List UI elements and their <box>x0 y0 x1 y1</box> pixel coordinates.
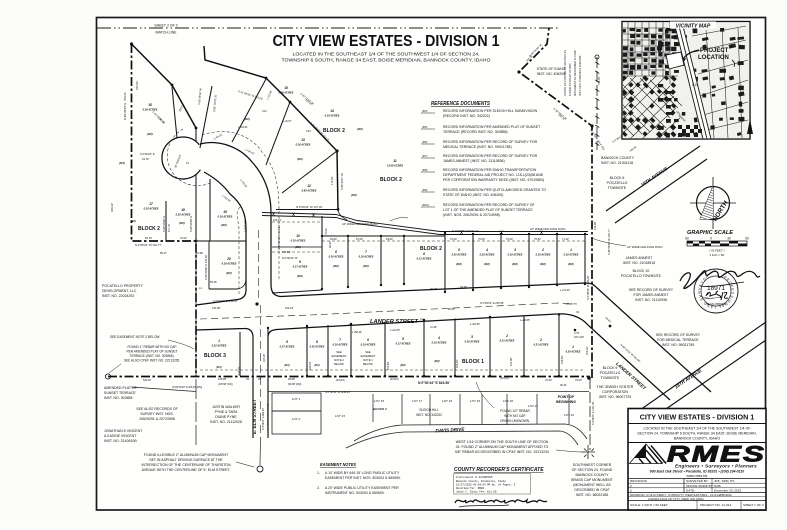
svg-text:INST. NO. 22024292: INST. NO. 22024292 <box>102 294 134 298</box>
svg-text:FOUND 1/2" REBAR: FOUND 1/2" REBAR <box>500 409 530 413</box>
svg-text:EASEMENT: EASEMENT <box>361 354 376 358</box>
svg-text:115.18': 115.18' <box>262 353 266 362</box>
svg-text:N 0°30'44" E 815.50': N 0°30'44" E 815.50' <box>418 381 450 385</box>
svg-text:SEE ALSO RECORDS OF: SEE ALSO RECORDS OF <box>136 407 177 411</box>
svg-text:(R1-R3): (R1-R3) <box>336 379 345 382</box>
svg-text:(S 0°36'43" E 660.17' (R5)): (S 0°36'43" E 660.17' (R5)) <box>268 403 270 430</box>
svg-text:(N 89°39'48" E 628.16' (R5)): (N 89°39'48" E 628.16' (R5)) <box>172 386 202 389</box>
svg-text:DATE:: DATE: <box>686 489 695 493</box>
svg-text:0.22 ACRES: 0.22 ACRES <box>212 344 227 348</box>
svg-text:189.22': 189.22' <box>110 202 114 212</box>
svg-text:WEST 1/16 CORNER ON THE SOUTH: WEST 1/16 CORNER ON THE SOUTH LINE OF SE… <box>456 440 549 444</box>
svg-text:BANNOCK COUNTY: BANNOCK COUNTY <box>601 156 635 160</box>
svg-text:( IN FEET ): ( IN FEET ) <box>709 249 724 253</box>
svg-text:0.21 ACRES: 0.21 ACRES <box>500 339 515 343</box>
svg-text:100.42': 100.42' <box>585 346 589 355</box>
svg-text:71.12': 71.12' <box>562 237 569 241</box>
svg-text:70.52': 70.52' <box>534 237 541 241</box>
svg-text:FOUND 1" REBAR WITH NO CAP: FOUND 1" REBAR WITH NO CAP <box>127 345 176 349</box>
svg-text:3: 3 <box>630 489 632 493</box>
svg-text:0.20 ACRES: 0.20 ACRES <box>310 345 325 349</box>
svg-text:S 0°00'22" E: S 0°00'22" E <box>140 152 155 156</box>
svg-text:PER CORPORATION WARRANTY DEED: PER CORPORATION WARRANTY DEED (INST. NO.… <box>443 178 544 182</box>
svg-text:SEE EASEMENT NOTE 2 BELOW: SEE EASEMENT NOTE 2 BELOW <box>110 335 160 339</box>
svg-text:0.35 ACRES: 0.35 ACRES <box>325 114 340 118</box>
svg-text:0.21 ACRES: 0.21 ACRES <box>534 343 549 347</box>
svg-text:FOUND ILLEGIBLE 2" ALUMINUM CA: FOUND ILLEGIBLE 2" ALUMINUM CAP MONUMENT <box>144 453 229 457</box>
svg-text:SOB: SOB <box>714 484 721 488</box>
svg-text:STATE OF IDAHO (INST. NO. 4062: STATE OF IDAHO (INST. NO. 406205) <box>443 193 503 197</box>
svg-text:3: 3 <box>471 335 473 339</box>
svg-text:0.18 ACRES: 0.18 ACRES <box>361 343 376 347</box>
svg-text:1: 1 <box>218 339 220 343</box>
svg-text:SURVEY INST. NOS.: SURVEY INST. NOS. <box>140 412 173 416</box>
svg-text:DEVELOPMENT, LLC: DEVELOPMENT, LLC <box>102 289 137 293</box>
svg-text:C10: C10 <box>306 129 311 133</box>
svg-text:0.20 ACRES: 0.20 ACRES <box>329 255 344 259</box>
svg-text:522.60': 522.60' <box>143 378 152 382</box>
svg-text:L+48.05': L+48.05' <box>520 318 530 322</box>
svg-text:2: 2 <box>630 484 632 488</box>
svg-text:106.63': 106.63' <box>560 355 564 364</box>
svg-text:RECORD INFORMATION PER SLEIGH: RECORD INFORMATION PER SLEIGH HILL SUBDI… <box>443 109 538 113</box>
svg-text:N 0°00'22" W 161.77': N 0°00'22" W 161.77' <box>135 243 162 247</box>
svg-text:LOT 19: LOT 19 <box>470 399 480 403</box>
svg-text:LOT 15: LOT 15 <box>335 414 345 418</box>
svg-text:BELOW: BELOW <box>363 362 373 366</box>
svg-text:FOUND TO RIGHT OF WAY: FOUND TO RIGHT OF WAY <box>568 63 572 96</box>
svg-text:(INST. NOS. 20629291 & 2072499: (INST. NOS. 20629291 & 20724998) <box>443 213 500 217</box>
svg-text:C1: C1 <box>420 317 424 321</box>
svg-text:S 0°00'22" E 238.16': S 0°00'22" E 238.16' <box>213 299 238 303</box>
svg-text:45.60': 45.60' <box>330 237 337 241</box>
svg-text:INST. NO. 99021755: INST. NO. 99021755 <box>662 343 694 347</box>
svg-text:A 10' WIDE BY 649.15' LONG PUB: A 10' WIDE BY 649.15' LONG PUBLIC UTILIT… <box>325 471 400 475</box>
svg-text:INST. NO. 342022: INST. NO. 342022 <box>416 413 442 417</box>
svg-text:(R2): (R2) <box>363 264 369 268</box>
svg-text:(R2): (R2) <box>297 274 303 278</box>
svg-text:INST. NOS. 97005159 & 22210395: INST. NOS. 97005159 & 22210395 <box>578 55 582 96</box>
svg-text:TERRACE (RECORD INST. NO. 3038: TERRACE (RECORD INST. NO. 303858) <box>443 130 508 134</box>
svg-text:L+44.51': L+44.51' <box>238 125 248 129</box>
svg-text:INST. NO. 21112928: INST. NO. 21112928 <box>210 420 242 424</box>
svg-text:103.52': 103.52' <box>282 250 291 254</box>
svg-text:BLOCK 6: BLOCK 6 <box>610 176 625 180</box>
svg-text:(99.98' (R3)): (99.98' (R3)) <box>288 383 302 386</box>
svg-text:9: 9 <box>299 260 301 264</box>
svg-text:0.35 ACRES: 0.35 ACRES <box>144 207 159 211</box>
svg-text:0.18 ACRES: 0.18 ACRES <box>432 341 447 345</box>
svg-text:SHEET 1 OF 3: SHEET 1 OF 3 <box>743 503 764 507</box>
svg-text:(R3): (R3) <box>422 109 428 113</box>
svg-text:EASEMENT: EASEMENT <box>332 354 347 358</box>
svg-text:12/27/2022 04:04:04 PM No. of: 12/27/2022 04:04:04 PM No. of Pages: 3 <box>456 483 516 487</box>
svg-text:55.46': 55.46' <box>210 280 217 284</box>
svg-text:BLOCK 1: BLOCK 1 <box>462 359 484 365</box>
svg-text:C4: C4 <box>576 310 580 314</box>
svg-text:115.48': 115.48' <box>386 361 390 370</box>
svg-text:Instrument # 22300505: Instrument # 22300505 <box>456 476 493 479</box>
svg-text:SEE RECORD OF SURVEY: SEE RECORD OF SURVEY <box>629 288 674 292</box>
svg-text:SEE ALSO CP&F INST. NO. 222132: SEE ALSO CP&F INST. NO. 22213235. <box>124 359 180 363</box>
svg-text:(R2): (R2) <box>456 262 462 266</box>
svg-text:(R7): (R7) <box>422 154 428 158</box>
svg-text:103.92': 103.92' <box>455 359 459 368</box>
svg-text:DEPARTMENT FEDERAL AID PROJECT: DEPARTMENT FEDERAL AID PROJECT NO. I-15-… <box>443 173 544 177</box>
svg-text:4: 4 <box>437 336 440 340</box>
svg-text:0.16 ACRES: 0.16 ACRES <box>218 215 233 219</box>
svg-text:LOCATION: LOCATION <box>698 55 729 61</box>
svg-text:N 89°42'47" W: N 89°42'47" W <box>340 173 344 190</box>
svg-text:0: 0 <box>710 237 712 241</box>
svg-text:A 20' WIDE PUBLIC UTILITY EASE: A 20' WIDE PUBLIC UTILITY EASEMENT PER <box>325 486 399 490</box>
svg-text:30: 30 <box>727 237 731 241</box>
svg-text:AMENDED PLAT OF: AMENDED PLAT OF <box>104 386 137 390</box>
svg-text:INST. NO. 66022186: INST. NO. 66022186 <box>576 493 608 497</box>
svg-text:N 0°30'44" E 1338.20': N 0°30'44" E 1338.20' <box>325 390 351 394</box>
svg-text:BLOCK 2: BLOCK 2 <box>138 226 160 232</box>
svg-text:105.98': 105.98' <box>218 377 227 381</box>
svg-text:10' WIDE WALKING PATH: 10' WIDE WALKING PATH <box>530 227 566 231</box>
svg-text:BLOCK 2: BLOCK 2 <box>420 246 442 252</box>
svg-text:0.85 ACRES: 0.85 ACRES <box>302 189 317 193</box>
svg-text:84.79': 84.79' <box>145 236 152 240</box>
svg-text:(105.98' (R3)): (105.98' (R3)) <box>218 383 233 386</box>
svg-text:(R9): (R9) <box>422 188 428 192</box>
svg-text:SEAN O'BRIEN: SEAN O'BRIEN <box>706 302 726 306</box>
svg-text:(R2): (R2) <box>130 219 136 223</box>
svg-text:BLOCK 10: BLOCK 10 <box>633 269 650 273</box>
svg-text:JAMES ANNEST: JAMES ANNEST <box>626 256 654 260</box>
svg-text:www.rmes.biz: www.rmes.biz <box>687 474 708 478</box>
svg-text:LOT 18: LOT 18 <box>442 399 452 403</box>
svg-text:163.41': 163.41' <box>273 218 282 222</box>
svg-text:EASEMENT NOTES: EASEMENT NOTES <box>320 462 357 467</box>
svg-text:10: 10 <box>296 234 300 238</box>
svg-text:5: 5 <box>402 337 404 341</box>
svg-text:SOUTHWEST CORNER: SOUTHWEST CORNER <box>573 463 612 467</box>
svg-text:MONUMENT AS DESCRIBED IN CP&F: MONUMENT AS DESCRIBED IN CP&F <box>573 50 577 96</box>
svg-text:0.18 ACRES: 0.18 ACRES <box>333 343 348 347</box>
svg-text:(R1-R3): (R1-R3) <box>390 378 399 381</box>
svg-text:14: 14 <box>330 109 334 113</box>
svg-text:75.40': 75.40' <box>430 287 437 291</box>
svg-text:RECORD INFORMATION PER RECORD: RECORD INFORMATION PER RECORD OF SURVEY … <box>443 154 538 158</box>
svg-text:104.18': 104.18' <box>285 306 294 310</box>
svg-text:SHEET 2 OF 2: SHEET 2 OF 2 <box>154 24 177 28</box>
svg-text:25.05': 25.05' <box>566 302 573 306</box>
svg-text:4: 4 <box>485 248 488 252</box>
svg-text:BANNOCK COUNTY, IDAHO: BANNOCK COUNTY, IDAHO <box>674 437 720 441</box>
svg-text:BLOCK 3: BLOCK 3 <box>204 353 226 359</box>
svg-text:25': 25' <box>246 377 250 381</box>
svg-text:131.98': 131.98' <box>212 306 221 310</box>
svg-text:S 0°36'27" E 660.33': S 0°36'27" E 660.33' <box>262 408 265 430</box>
svg-text:INST. NO. 21304118: INST. NO. 21304118 <box>601 161 633 165</box>
svg-text:6: 6 <box>423 252 425 256</box>
svg-text:54.38': 54.38' <box>460 285 467 289</box>
svg-text:(R2): (R2) <box>221 223 227 227</box>
svg-text:INST. NO. 406205: INST. NO. 406205 <box>537 72 565 76</box>
svg-text:8: 8 <box>335 250 337 254</box>
svg-text:99.98': 99.98' <box>288 377 295 381</box>
svg-text:17: 17 <box>149 202 153 206</box>
svg-text:MEDICAL TERRACE (INST. NO. 990: MEDICAL TERRACE (INST. NO. 99021785) <box>443 145 512 149</box>
svg-text:753.05': 753.05' <box>597 76 601 85</box>
svg-text:5: 5 <box>458 248 460 252</box>
svg-text:N 89°59'38" E 104.21': N 89°59'38" E 104.21' <box>277 224 281 250</box>
svg-text:LOT 1: LOT 1 <box>292 397 301 401</box>
svg-text:SEE: SEE <box>365 350 371 354</box>
svg-text:PROJECT NO. 21-014: PROJECT NO. 21-014 <box>700 503 732 507</box>
svg-text:0.20 ACRES: 0.20 ACRES <box>176 213 191 217</box>
svg-text:0.17 ACRES: 0.17 ACRES <box>396 342 411 346</box>
svg-text:INST. NO. 303858: INST. NO. 303858 <box>104 396 132 400</box>
svg-text:BLOCK 2: BLOCK 2 <box>380 177 402 183</box>
svg-text:(R2): (R2) <box>297 157 303 161</box>
svg-text:RECORD INFORMATION PER IDAHO T: RECORD INFORMATION PER IDAHO TRANSPORTAT… <box>443 168 537 172</box>
svg-text:TOWNSITE: TOWNSITE <box>608 186 627 190</box>
svg-text:10' WIDE WALKING PATH: 10' WIDE WALKING PATH <box>627 245 663 249</box>
svg-text:0.36 ACRES: 0.36 ACRES <box>143 108 158 112</box>
svg-text:SURVEYED BY:: SURVEYED BY: <box>686 479 709 483</box>
svg-text:41.98': 41.98' <box>196 251 203 255</box>
svg-text:RECORD INFORMATION PER RECORD: RECORD INFORMATION PER RECORD OF SURVEY … <box>443 203 535 207</box>
svg-text:117.79': 117.79' <box>167 223 171 232</box>
svg-text:49.33': 49.33' <box>328 241 332 248</box>
svg-text:2: 2 <box>541 248 544 252</box>
svg-text:0.20 ACRES: 0.20 ACRES <box>566 350 581 354</box>
svg-text:INST. NO. 2140910B: INST. NO. 2140910B <box>104 439 137 443</box>
svg-text:76.02': 76.02' <box>180 236 187 240</box>
svg-text:THE JEWISH CENTER: THE JEWISH CENTER <box>597 385 634 389</box>
svg-text:5/8" REBAR AS DESCRIBED IN CP&: 5/8" REBAR AS DESCRIBED IN CP&F INST. NO… <box>455 450 549 454</box>
svg-text:243.92': 243.92' <box>135 80 139 90</box>
svg-text:Engineers • Surveyors • Planne: Engineers • Surveyors • Planners <box>675 464 757 469</box>
svg-text:INST. NO. 21110936: INST. NO. 21110936 <box>635 298 667 302</box>
svg-text:RECORD INFORMATION PER RECORD: RECORD INFORMATION PER RECORD OF SURVEY … <box>443 140 538 144</box>
svg-text:(R5): (R5) <box>422 125 428 129</box>
svg-text:8: 8 <box>316 340 318 344</box>
svg-text:(MONUMENT WELL AS: (MONUMENT WELL AS <box>573 483 611 487</box>
svg-text:INST. NO. 96007729: INST. NO. 96007729 <box>599 395 631 399</box>
svg-text:BANNOCK COUNTY: BANNOCK COUNTY <box>575 473 609 477</box>
svg-text:L+73.33': L+73.33' <box>560 288 570 292</box>
svg-text:2: 2 <box>505 334 508 338</box>
svg-text:30.41': 30.41' <box>560 383 567 387</box>
svg-text:0.20 ACRES: 0.20 ACRES <box>465 340 480 344</box>
svg-text:SEE RECORD OF SURVEY: SEE RECORD OF SURVEY <box>656 333 701 337</box>
svg-text:(R2): (R2) <box>333 264 339 268</box>
svg-text:LOT 21: LOT 21 <box>528 404 538 408</box>
svg-text:12: 12 <box>307 184 311 188</box>
svg-text:NOTE 2: NOTE 2 <box>334 358 344 362</box>
svg-text:0.18 ACRES: 0.18 ACRES <box>564 253 579 257</box>
svg-text:13.68 ACRES: 13.68 ACRES <box>387 164 403 168</box>
svg-text:20629291 & 20724998: 20629291 & 20724998 <box>139 417 174 421</box>
svg-text:N 0°00'22" W: N 0°00'22" W <box>282 256 298 260</box>
svg-text:2: 2 <box>539 338 542 342</box>
svg-text:BLOCK 9: BLOCK 9 <box>603 366 618 370</box>
svg-text:S 0°36'27" E 1321.03': S 0°36'27" E 1321.03' <box>592 401 595 425</box>
svg-text:BELOW: BELOW <box>334 362 344 366</box>
svg-text:TERRACE (INST. NO. 303866).: TERRACE (INST. NO. 303866). <box>130 354 175 358</box>
svg-text:OFFICE WORK BY:: OFFICE WORK BY: <box>686 484 714 488</box>
svg-text:BLOCK 2: BLOCK 2 <box>323 128 345 134</box>
svg-text:0.20 ACRES: 0.20 ACRES <box>452 253 467 257</box>
svg-text:I-15: I-15 <box>692 83 698 87</box>
svg-text:RECORD INFORMATION PER AMENDED: RECORD INFORMATION PER AMENDED PLAT OF S… <box>443 125 541 129</box>
svg-text:(R1): (R1) <box>216 365 221 369</box>
svg-text:REVISIONS: REVISIONS <box>630 479 647 483</box>
svg-text:26.00: 26.00 <box>448 307 455 311</box>
svg-text:(R3): (R3) <box>119 161 125 165</box>
svg-text:0.31 ACRES: 0.31 ACRES <box>417 257 432 261</box>
svg-text:FOR MEDICAL TERRACE: FOR MEDICAL TERRACE <box>657 338 699 342</box>
svg-text:109.23': 109.23' <box>308 361 312 370</box>
svg-text:TM: TM <box>663 461 666 464</box>
svg-text:70.00': 70.00' <box>506 237 513 241</box>
svg-text:PER AMENDED PLAT OF SUNSET: PER AMENDED PLAT OF SUNSET <box>127 350 178 354</box>
svg-text:JAMES ANNEST (INST. NO. 211108: JAMES ANNEST (INST. NO. 21110836) <box>443 159 505 163</box>
svg-text:POCATELLO: POCATELLO <box>600 371 621 375</box>
svg-text:1: 1 <box>570 248 572 252</box>
svg-text:70.00': 70.00' <box>545 378 552 382</box>
svg-text:CITY VIEW ESTATES - DIVISION 1: CITY VIEW ESTATES - DIVISION 1 <box>640 413 755 422</box>
svg-text:3.75': 3.75' <box>574 331 580 335</box>
svg-text:N 0°38'09" W 524.00': N 0°38'09" W 524.00' <box>586 275 590 300</box>
svg-text:0.27 ACRES: 0.27 ACRES <box>280 345 295 349</box>
svg-text:0.18 ACRES: 0.18 ACRES <box>291 239 306 243</box>
svg-text:FOR JAMES ANNEST: FOR JAMES ANNEST <box>633 293 669 297</box>
svg-text:(R1): (R1) <box>314 363 319 367</box>
svg-text:135.02': 135.02' <box>237 366 241 375</box>
svg-text:GRAPHIC SCALE: GRAPHIC SCALE <box>687 230 734 236</box>
svg-text:N 0°00'22" W 137.34': N 0°00'22" W 137.34' <box>296 205 323 209</box>
svg-text:INTERSECTION OF THE CENTERLINE: INTERSECTION OF THE CENTERLINE OF THURST… <box>141 463 231 467</box>
svg-text:OF SECTION 24. FOUND: OF SECTION 24. FOUND <box>572 468 613 472</box>
svg-text:43.79': 43.79' <box>142 157 149 161</box>
svg-text:120.98': 120.98' <box>593 221 597 230</box>
svg-text:20: 20 <box>226 257 231 261</box>
svg-text:N 89°39'38" E 769.21': N 89°39'38" E 769.21' <box>123 91 127 120</box>
svg-text:(R2): (R2) <box>484 262 490 266</box>
svg-text:REFERENCE DOCUMENTS: REFERENCE DOCUMENTS <box>431 101 490 107</box>
svg-text:December 20, 2022: December 20, 2022 <box>714 489 741 493</box>
svg-text:S 0°09'13" E 205.58': S 0°09'13" E 205.58' <box>480 301 504 305</box>
svg-text:0.17 ACRES: 0.17 ACRES <box>293 265 308 269</box>
svg-text:(R2): (R2) <box>540 262 546 266</box>
svg-text:EASEMENT PER INST. NOS. 503003: EASEMENT PER INST. NOS. 503003 & 560690. <box>325 476 401 480</box>
svg-text:75.00': 75.00' <box>324 228 328 235</box>
svg-text:(R1): (R1) <box>284 363 289 367</box>
svg-text:70.00': 70.00' <box>478 237 485 241</box>
svg-text:WITH NO CAP.: WITH NO CAP. <box>504 414 526 418</box>
svg-text:19: 19 <box>223 210 227 214</box>
svg-text:0.20 ACRES: 0.20 ACRES <box>480 253 495 257</box>
svg-text:7: 7 <box>339 338 341 342</box>
svg-text:(R1-R3): (R1-R3) <box>500 377 509 380</box>
svg-text:NOTE 1: NOTE 1 <box>363 358 373 362</box>
svg-text:3: 3 <box>514 248 516 252</box>
svg-text:POCATELLO PROPERTY: POCATELLO PROPERTY <box>102 284 144 288</box>
svg-text:85.17': 85.17' <box>160 251 167 255</box>
svg-text:JUSTIN WALKER: JUSTIN WALKER <box>212 405 240 409</box>
svg-text:LOT 16: LOT 16 <box>374 399 384 403</box>
svg-text:174.09': 174.09' <box>330 176 334 185</box>
svg-text:LOCATED IN THE SOUTHEAST 1/4 O: LOCATED IN THE SOUTHEAST 1/4 OF THE SOUT… <box>644 427 752 431</box>
svg-text:LOT 17: LOT 17 <box>412 399 422 403</box>
svg-text:LOT 22: LOT 22 <box>564 413 574 417</box>
svg-text:(R2): (R2) <box>351 193 357 197</box>
svg-text:STATE OF IDAHO: STATE OF IDAHO <box>537 67 566 71</box>
svg-text:N 89°36'09" W 120.77': N 89°36'09" W 120.77' <box>607 228 611 255</box>
svg-text:SEE: SEE <box>336 350 342 354</box>
svg-text:CORPORATION: CORPORATION <box>602 390 628 394</box>
svg-text:INST. NO. 21018918: INST. NO. 21018918 <box>623 261 655 265</box>
svg-text:101.98': 101.98' <box>509 357 513 366</box>
svg-text:(R2): (R2) <box>357 127 363 131</box>
svg-text:75.00': 75.00' <box>575 378 582 382</box>
svg-text:15: 15 <box>284 86 288 90</box>
svg-text:L+58.46': L+58.46' <box>352 330 362 334</box>
svg-text:L+44.50': L+44.50' <box>390 328 400 332</box>
svg-text:LANDER STREET: LANDER STREET <box>370 319 419 325</box>
svg-text:Jason C. Dixon Fee: $11.00: Jason C. Dixon Fee: $11.00 <box>456 490 497 494</box>
svg-text:18: 18 <box>181 208 185 212</box>
svg-text:25': 25' <box>258 377 262 381</box>
svg-text:0.16 ACRES: 0.16 ACRES <box>222 262 237 266</box>
svg-text:(R2): (R2) <box>400 363 405 367</box>
svg-text:CITY VIEW ESTATES - DIVISION 1: CITY VIEW ESTATES - DIVISION 1 <box>273 33 500 50</box>
svg-text:POCATELLO: POCATELLO <box>607 181 628 185</box>
svg-text:(R8): (R8) <box>422 168 428 172</box>
svg-text:18: 18 <box>148 103 152 107</box>
svg-text:LOT 2: LOT 2 <box>292 417 301 421</box>
svg-text:0.18 ACRES: 0.18 ACRES <box>508 253 523 257</box>
svg-text:(R2): (R2) <box>295 245 301 249</box>
svg-text:N 0°00'22" W 547.02': N 0°00'22" W 547.02' <box>452 229 479 233</box>
svg-text:10' WIDE WALKING PATH: 10' WIDE WALKING PATH <box>342 222 378 226</box>
svg-text:(R2): (R2) <box>568 262 574 266</box>
svg-text:9: 9 <box>286 340 288 344</box>
svg-text:CAD\04-14\21 FP CITY VIEW (01): CAD\04-14\21 FP CITY VIEW (01).DWG <box>648 497 704 501</box>
svg-text:N 89°39'38" E: N 89°39'38" E <box>189 216 193 232</box>
svg-text:C12: C12 <box>262 109 267 113</box>
svg-text:(R2): (R2) <box>434 359 439 363</box>
svg-text:POCATELLO TOWNSITE: POCATELLO TOWNSITE <box>621 274 662 278</box>
svg-text:Recorded for: RMES: Recorded for: RMES <box>456 486 484 490</box>
svg-text:(RECORD INST. NO. 342022): (RECORD INST. NO. 342022) <box>443 114 490 118</box>
svg-text:VICINITY MAP: VICINITY MAP <box>676 24 711 30</box>
svg-text:600 East Oak Street • Pocatell: 600 East Oak Street • Pocatello, ID 8320… <box>650 470 744 474</box>
svg-text:x1.96': x1.96' <box>430 325 437 329</box>
svg-text:E. ELM STREET: E. ELM STREET <box>252 398 257 434</box>
svg-text:70.00': 70.00' <box>450 237 457 241</box>
svg-text:BLOCK 3: BLOCK 3 <box>373 407 386 411</box>
svg-text:L+103.23': L+103.23' <box>243 220 247 232</box>
svg-text:6: 6 <box>367 338 369 342</box>
svg-text:24. FOUND 2" ALUMINUM CAP MONU: 24. FOUND 2" ALUMINUM CAP MONUMENT AFFIX… <box>456 445 549 449</box>
svg-text:AVENUE WITH THE CENTERLINE OF: AVENUE WITH THE CENTERLINE OF E. ELM STR… <box>142 468 231 472</box>
svg-text:BRASS CAP MONUMENT: BRASS CAP MONUMENT <box>571 478 613 482</box>
svg-text:POINT OF: POINT OF <box>558 395 575 399</box>
svg-text:TOWNSITE: TOWNSITE <box>601 376 620 380</box>
svg-text:N 89°59'38" E 105.00': N 89°59'38" E 105.00' <box>204 254 208 280</box>
svg-text:(R6): (R6) <box>422 140 428 144</box>
svg-text:SECTION 24, TOWNSHIP 6 SOUTH,: SECTION 24, TOWNSHIP 6 SOUTH, RANGE 34 E… <box>637 432 756 436</box>
svg-text:SET IN ASPHALT DRIVING SURFACE: SET IN ASPHALT DRIVING SURFACE AT THE <box>149 458 223 462</box>
